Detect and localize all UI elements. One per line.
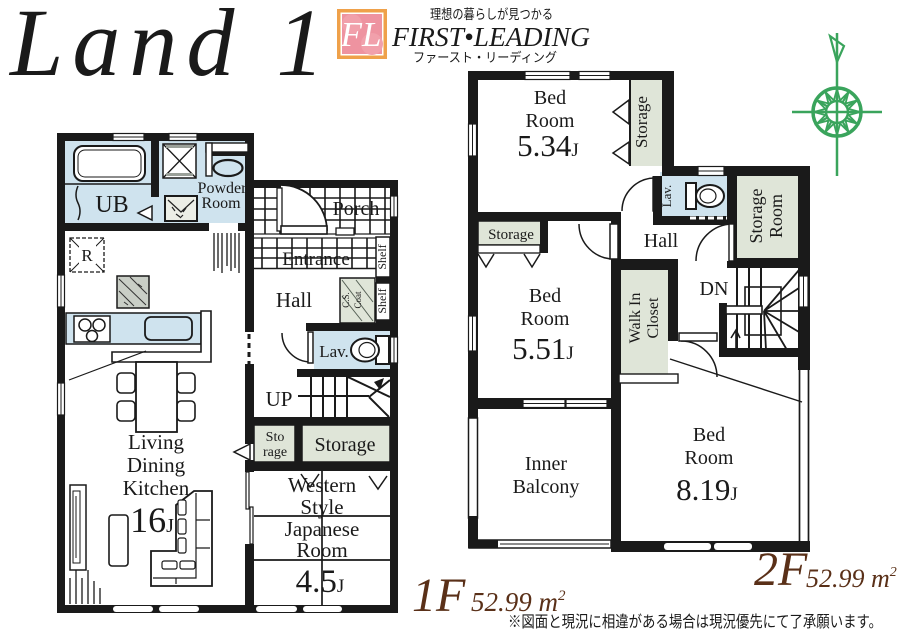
svg-text:理想の暮らしが見つかる: 理想の暮らしが見つかる: [430, 7, 553, 22]
svg-text:5.34J: 5.34J: [517, 128, 579, 163]
svg-text:Room: Room: [296, 538, 347, 562]
svg-text:R: R: [81, 246, 93, 265]
svg-text:Hall: Hall: [276, 288, 312, 312]
svg-text:Room: Room: [685, 447, 734, 469]
svg-text:※図面と現況に相違がある場合は現況優先にて了承願います。: ※図面と現況に相違がある場合は現況優先にて了承願います。: [508, 613, 882, 631]
svg-text:ファースト・リーディング: ファースト・リーディング: [413, 50, 557, 65]
svg-text:UP: UP: [266, 387, 293, 411]
svg-text:Storage: Storage: [314, 434, 375, 456]
svg-text:Dining: Dining: [127, 453, 186, 477]
svg-text:Bed: Bed: [534, 87, 566, 109]
svg-text:Storage: Storage: [746, 188, 766, 243]
svg-text:Closet: Closet: [645, 297, 662, 338]
svg-text:FIRST•LEADING: FIRST•LEADING: [391, 22, 590, 52]
svg-text:Inner: Inner: [525, 453, 568, 475]
svg-text:Shelf: Shelf: [375, 288, 389, 313]
svg-text:Lav.: Lav.: [319, 342, 349, 361]
svg-text:Coat: Coat: [353, 291, 363, 308]
svg-text:4.5J: 4.5J: [296, 564, 345, 600]
svg-text:Hall: Hall: [644, 230, 679, 252]
svg-text:UB: UB: [95, 192, 128, 218]
svg-text:2F: 2F: [754, 543, 808, 596]
svg-text:Land 1: Land 1: [8, 0, 333, 96]
svg-text:FL: FL: [340, 15, 382, 54]
svg-text:Room: Room: [766, 194, 786, 238]
svg-text:Storage: Storage: [488, 227, 534, 243]
svg-text:8.19J: 8.19J: [676, 472, 738, 507]
svg-text:Living: Living: [128, 430, 184, 454]
svg-text:Lav.: Lav.: [659, 185, 674, 208]
svg-text:Porch: Porch: [333, 198, 380, 220]
svg-text:Sto: Sto: [266, 430, 285, 445]
svg-text:52.99 m2: 52.99 m2: [806, 564, 897, 593]
svg-text:Storage: Storage: [632, 96, 651, 148]
svg-text:16J: 16J: [130, 500, 174, 540]
svg-text:5.51J: 5.51J: [512, 331, 574, 366]
svg-text:DN: DN: [700, 278, 729, 300]
svg-text:Western: Western: [288, 473, 357, 497]
svg-text:Bed: Bed: [529, 285, 561, 307]
svg-text:Walk In: Walk In: [627, 293, 644, 344]
svg-text:Balcony: Balcony: [513, 476, 580, 498]
svg-text:1F: 1F: [412, 569, 466, 622]
svg-text:Bed: Bed: [693, 424, 725, 446]
svg-text:Room: Room: [521, 308, 570, 330]
svg-text:Room: Room: [201, 195, 241, 212]
svg-text:Shelf: Shelf: [375, 244, 389, 269]
svg-text:Entrance: Entrance: [282, 249, 350, 270]
svg-text:52.99 m2: 52.99 m2: [471, 587, 566, 617]
svg-text:rage: rage: [263, 445, 287, 460]
svg-text:C.S.: C.S.: [341, 292, 351, 308]
svg-text:Kitchen: Kitchen: [123, 476, 190, 500]
svg-text:Style: Style: [300, 495, 343, 519]
